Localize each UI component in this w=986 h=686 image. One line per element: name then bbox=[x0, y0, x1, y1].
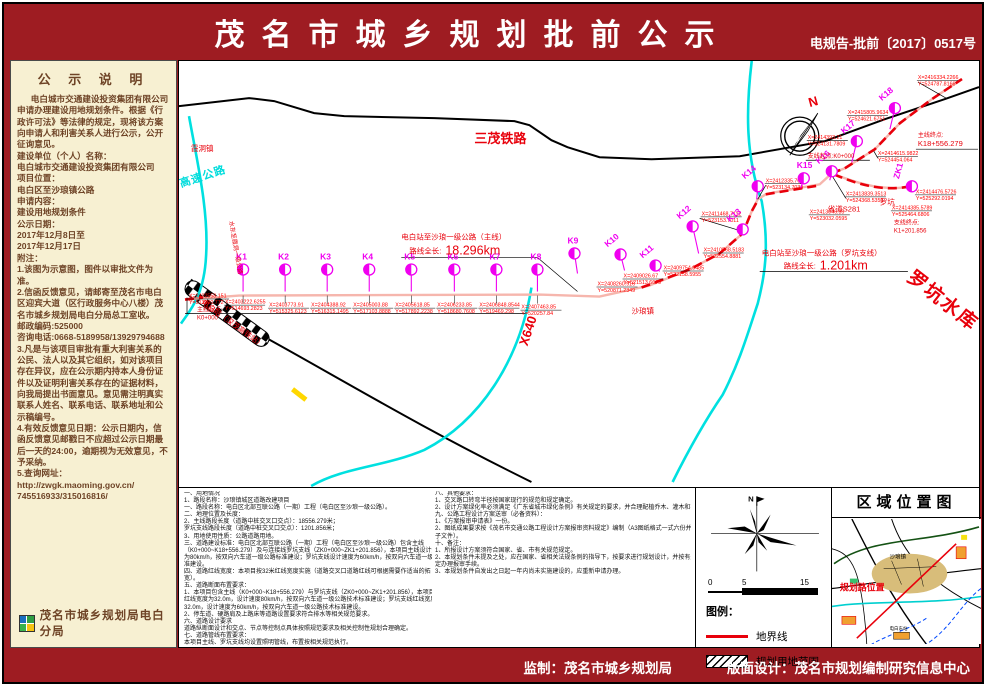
region-town-label: 沙琅镇 bbox=[890, 552, 907, 560]
poster: 茂名市城乡规划批前公示 电规告-批前〔2017〕0517号 公 示 说 明 电白… bbox=[0, 0, 986, 686]
sidebar-paragraph: 5.查询网址： bbox=[17, 468, 170, 479]
note-line: 三、道路建设标准：电白区北部互联公路（一期）工程（电白区至沙琅一级公路）包含主线 bbox=[184, 541, 432, 548]
sidebar-paragraph: 3.凡是与该项目审批有重大利害关系的公民、法人以及其它组织，如对该项目存在异议，… bbox=[17, 344, 170, 423]
map-label: 主线终点: bbox=[918, 131, 944, 139]
note-line: 四、道路红线宽度：本项目按32米红线宽度实施（道路交叉口道路红线可根据需要作适当… bbox=[184, 569, 432, 576]
coord-label-y: Y=516315.1495 bbox=[311, 309, 349, 315]
stake-point-label: K18 bbox=[877, 85, 896, 103]
region-map-title: 区域位置图 bbox=[832, 488, 981, 518]
coordinate-labels: X=2402558.151Y=513990.772X=2403222.6255Y… bbox=[188, 75, 958, 317]
coord-label-y: Y=524787.8166 bbox=[918, 82, 956, 88]
note-line: 定办理报审手续。 bbox=[435, 562, 691, 569]
sidebar-footer: 茂名市城乡规划局电白分局 bbox=[19, 607, 176, 639]
sidebar-paragraph: 2017年12月17日 bbox=[17, 241, 170, 252]
sidebar-paragraph: 电白城市交通建设投资集团有限公司申请办理建设用地规划条件。根据《行政许可法》等法… bbox=[17, 94, 170, 151]
sidebar-paragraph: 745516933/315016816/ bbox=[17, 491, 170, 502]
legend-panel: N 0 5 15 图例： 地界线 规划用地范围 bbox=[696, 488, 831, 647]
footer-supervisor: 监制：茂名市城乡规划局 bbox=[524, 657, 673, 677]
footer-design: 版面设计：茂名市规划编制研究信息中心 bbox=[727, 657, 970, 677]
map-label: 三茂铁路 bbox=[474, 131, 527, 146]
map-label: 霞洞镇 bbox=[191, 143, 214, 153]
coord-label-y: Y=522158.5955 bbox=[664, 272, 702, 278]
notes-panel: 一、用地情况1、路段名称：沙琅镇城区道路改建项目一、路段名称：电白区北部互联公路… bbox=[178, 488, 980, 648]
sidebar-paragraph: 建设用地规划条件 bbox=[17, 207, 170, 218]
notes-column-right: 八、其他要求：1、交叉路口转弯半径按国家现行的规范和规定确定。2、设计方案绿化率… bbox=[435, 491, 691, 645]
map-label: K1+201.856 bbox=[894, 228, 927, 234]
note-line: 罗坑支线路段长度（道路中桩交叉口交点）：1201.856米； bbox=[184, 526, 432, 533]
map-label: 高速公路 bbox=[179, 162, 228, 190]
map-area: X=2402558.151Y=513990.772X=2403222.6255Y… bbox=[178, 60, 980, 488]
legend-title: 图例： bbox=[706, 603, 831, 619]
sidebar-paragraph: 4.有效反馈意见日期：公示日期内，信函反馈意见邮戳日不应超过公示日期最后一天的2… bbox=[17, 423, 170, 468]
sidebar-paragraph: 咨询电话:0668-5189958/13929794688 bbox=[17, 332, 170, 343]
coord-label-x: X=2414385.5789 bbox=[892, 205, 933, 211]
sidebar-paragraph: 附注： bbox=[17, 253, 170, 264]
map-label: 支线终点: bbox=[894, 218, 920, 226]
stake-point-label: K11 bbox=[637, 242, 655, 260]
coord-label-x: X=2404388.92 bbox=[311, 303, 346, 309]
wind-rose-icon: N bbox=[706, 492, 824, 574]
sidebar-paragraph: 电白城市交通建设投资集团有限公司 bbox=[17, 162, 170, 173]
note-line: 红线宽度为32.0m，设计速度80km/h，按双向六车道一级公路技术标准建设；罗… bbox=[184, 597, 432, 604]
map-label: 水东至霞洞一级公路 bbox=[227, 220, 244, 275]
coord-label-y: Y=523032.0595 bbox=[810, 216, 848, 222]
bureau-logo-icon bbox=[19, 615, 35, 632]
coord-label-y: Y=525292.0194 bbox=[916, 196, 954, 202]
map-label: 沙琅镇 bbox=[632, 306, 655, 316]
map-label: K18+556.279 bbox=[918, 139, 963, 148]
map-label: 主线起点: bbox=[197, 306, 223, 314]
sidebar-title: 公 示 说 明 bbox=[17, 69, 170, 88]
scale-bar-labels: 0 5 15 bbox=[708, 578, 818, 587]
note-line: 32.0m，设计速度为60km/h，按双向六车道一级公路技术标准建设。 bbox=[184, 605, 432, 612]
note-line: 本项目主线、罗坑支线均设置照明管线，布置按相关规范执行。 bbox=[184, 640, 432, 645]
region-map-canvas: 沙琅镇 规划路位置 电白东站 bbox=[832, 519, 981, 644]
sidebar-paragraph: http://zwgk.maoming.gov.cn/ bbox=[17, 480, 170, 491]
coord-label-y: Y=514693.2823 bbox=[225, 306, 263, 312]
map-label: 电白站至沙琅一级公路（主线） bbox=[401, 231, 506, 241]
note-line: 2、本规划条件未提及之处，应在国家、省相关法规条例的指导下，按要求进行规划设计，… bbox=[435, 555, 691, 562]
document-number: 电规告-批前〔2017〕0517号 bbox=[810, 33, 976, 52]
stake-point-label: ZK1 bbox=[891, 161, 905, 179]
map-label: 电白站至沙琅一级公路（罗坑支线） bbox=[762, 247, 882, 257]
map-label: 支线起点:K0+000 bbox=[808, 152, 855, 160]
legend-item-boundary: 地界线 bbox=[706, 629, 831, 644]
coord-label-x: X=2406848.8544 bbox=[479, 303, 520, 309]
north-label: N bbox=[748, 494, 754, 503]
poster-page: 茂名市城乡规划批前公示 电规告-批前〔2017〕0517号 公 示 说 明 电白… bbox=[2, 2, 984, 684]
stake-point-label: K4 bbox=[362, 251, 373, 261]
coord-label-x: X=2403773.91 bbox=[269, 303, 304, 309]
stake-point-label: K2 bbox=[278, 251, 289, 261]
coord-label-y: Y=520871.2349 bbox=[598, 288, 636, 294]
level-crossing-icon bbox=[291, 387, 307, 401]
road-x640-line bbox=[311, 288, 531, 486]
note-line: 2、停车道、硬路肩及上路床等道路设置要求符合排水等相关规范要求。 bbox=[184, 612, 432, 619]
scale-bar bbox=[708, 588, 818, 595]
note-line: 为80km/h，按双向六车道一级公路标准建设；罗坑支线设计速度为60km/h，按… bbox=[184, 555, 432, 562]
note-line: 3、本规划条件自发出之日起一年内尚未实施建设的，应重新申请办理。 bbox=[435, 569, 691, 576]
note-line: 准建设。 bbox=[184, 562, 432, 569]
sidebar-paragraph: 电白区至沙琅镇公路 bbox=[17, 185, 170, 196]
coord-label-y: Y=517103.8888 bbox=[353, 309, 391, 315]
bureau-name: 茂名市城乡规划局电白分局 bbox=[40, 607, 176, 639]
map-label: 路线全长: bbox=[409, 245, 441, 255]
note-line: 子文件）。 bbox=[435, 534, 691, 541]
map-label: K0+000 bbox=[197, 316, 219, 322]
note-line: 2、图纸成果要求按《茂名市交通公路工程设计方案报审资料规定》编制（A3图纸格式一… bbox=[435, 526, 691, 533]
sidebar-paragraph: 1.该图为示意图，图件以审批文件为准。 bbox=[17, 264, 170, 287]
coord-label-y: Y=522554.8881 bbox=[704, 254, 742, 260]
note-line: 道路纵断面设计和交点、节点等控制点具体按照规范要求及相关控制性规划合理确定。 bbox=[184, 626, 432, 633]
header: 茂名市城乡规划批前公示 电规告-批前〔2017〕0517号 bbox=[4, 4, 982, 56]
map-label: N bbox=[807, 93, 820, 110]
map-label: 路线全长: bbox=[784, 260, 816, 270]
sidebar-paragraph: 2017年12月8日至 bbox=[17, 230, 170, 241]
note-line: 六、道路设计要求 bbox=[184, 619, 432, 626]
coord-label-y: Y=523134.7039 bbox=[766, 185, 804, 191]
notice-sidebar: 公 示 说 明 电白城市交通建设投资集团有限公司申请办理建设用地规划条件。根据《… bbox=[10, 60, 177, 648]
map-label: 罗坑 bbox=[880, 196, 895, 206]
coord-label-x: X=2405618.85 bbox=[395, 303, 430, 309]
sidebar-paragraph: 建设单位（个人）名称： bbox=[17, 151, 170, 162]
stake-point-label: K15 bbox=[797, 160, 813, 170]
note-line: 3、用地使用性质：公路道路用地。 bbox=[184, 534, 432, 541]
note-line: 七、道路管线布置要求： bbox=[184, 633, 432, 640]
region-road-label: 规划路位置 bbox=[840, 581, 885, 592]
stake-point-label: K3 bbox=[320, 251, 331, 261]
map-label: 罗坑水库 bbox=[903, 265, 979, 335]
sidebar-paragraph: 项目位置： bbox=[17, 173, 170, 184]
coord-label-x: X=2405003.88 bbox=[353, 303, 388, 309]
legend-item-label: 地界线 bbox=[756, 629, 788, 644]
coord-label-y: Y=517892.2238 bbox=[395, 309, 433, 315]
map-label: 省道S281 bbox=[828, 203, 861, 213]
coord-label-y: Y=524368.5353 bbox=[846, 198, 884, 204]
region-station-label: 电白东站 bbox=[890, 625, 908, 632]
stake-point-label: K8 bbox=[530, 251, 541, 261]
sidebar-paragraph: 邮政编码:525000 bbox=[17, 321, 170, 332]
sidebar-paragraph: 申请内容： bbox=[17, 196, 170, 207]
sidebar-body: 电白城市交通建设投资集团有限公司申请办理建设用地规划条件。根据《行政许可法》等法… bbox=[17, 94, 170, 502]
railway-line bbox=[179, 87, 979, 159]
stake-point-label: K9 bbox=[567, 235, 578, 245]
coord-label-x: X=2410568.5183 bbox=[704, 247, 745, 253]
note-line: 十、备注： bbox=[435, 541, 691, 548]
coord-label-x: X=2414476.5726 bbox=[916, 189, 957, 195]
coord-label-y: Y=521513.6679 bbox=[624, 280, 662, 286]
stake-point-label: K12 bbox=[674, 203, 693, 221]
coord-label-x: X=2414393.21 bbox=[808, 135, 843, 141]
map-canvas: X=2402558.151Y=513990.772X=2403222.6255Y… bbox=[179, 61, 979, 487]
coord-label-y: Y=524131.7809 bbox=[808, 142, 846, 148]
map-label: 1.201km bbox=[820, 258, 868, 272]
coord-label-x: X=2407463.85 bbox=[521, 305, 556, 311]
note-line: 1、所报设计方案须符合国家、省、市有关规范规定。 bbox=[435, 548, 691, 555]
coord-label-y: Y=519469.298 bbox=[479, 309, 514, 315]
boundary-line-swatch bbox=[706, 635, 748, 638]
note-line: （K0+000~K18+556.279）及与连接线罗坑支线（ZK0+000~ZK… bbox=[184, 548, 432, 555]
coord-label-x: X=2416334.2266 bbox=[918, 75, 959, 81]
coord-label-y: Y=518680.7608 bbox=[437, 309, 475, 315]
coord-label-x: X=2406233.85 bbox=[437, 303, 472, 309]
page-title: 茂名市城乡规划批前公示 bbox=[144, 10, 802, 54]
stake-point-label: K10 bbox=[602, 231, 621, 249]
coord-label-x: X=2409754.9485 bbox=[664, 265, 705, 271]
map-label: 18.296km bbox=[445, 243, 500, 257]
sidebar-paragraph: 公示日期： bbox=[17, 219, 170, 230]
notes-column-left: 一、用地情况1、路段名称：沙琅镇城区道路改建项目一、路段名称：电白区北部互联公路… bbox=[184, 491, 432, 645]
sidebar-paragraph: 2.信函反馈意见，请邮寄至茂名市电白区迎宾大道（区行政服务中心八楼）茂名市城乡规… bbox=[17, 287, 170, 321]
coord-label-x: X=2409026.67 bbox=[624, 274, 659, 280]
footer-bar: 监制：茂名市城乡规划局 版面设计：茂名市规划编制研究信息中心 bbox=[4, 652, 982, 682]
region-map-panel: 区域位置图 bbox=[831, 488, 981, 647]
coord-label-y: Y=515325.6123 bbox=[269, 309, 307, 315]
coord-label-y: Y=525464.6806 bbox=[892, 212, 930, 218]
coord-label-x: X=2403222.6255 bbox=[225, 300, 266, 306]
map-label: X640 bbox=[516, 314, 540, 348]
coord-label-x: X=2414615.9822 bbox=[878, 151, 919, 157]
coord-label-x: X=2415805.9634 bbox=[848, 110, 889, 116]
